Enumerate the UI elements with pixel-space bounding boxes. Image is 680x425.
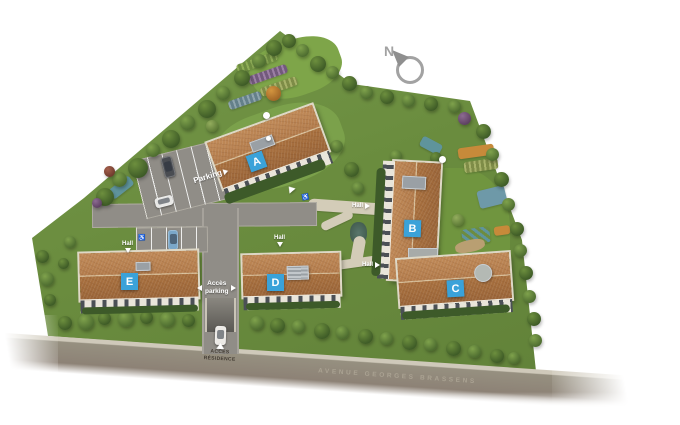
bush (92, 198, 102, 208)
tree (296, 44, 309, 57)
tree (292, 320, 305, 333)
tree (344, 162, 359, 177)
arrow-right-icon (231, 285, 236, 291)
building-c-badge[interactable]: C (447, 280, 465, 298)
tree (234, 70, 250, 86)
tree (402, 335, 417, 350)
car (168, 230, 178, 250)
disabled-parking-icon: ♿ (138, 235, 146, 241)
arrow-left-icon (197, 285, 202, 291)
tree (326, 66, 339, 79)
tree (266, 40, 282, 56)
tree (424, 338, 437, 351)
tree (523, 290, 536, 303)
tree (206, 120, 218, 132)
acces-parking-label: Accès parking (197, 280, 236, 296)
tree (330, 140, 343, 153)
tree (146, 143, 160, 157)
tree (250, 316, 264, 330)
hall-marker-building-b: Hall (352, 203, 370, 209)
tree (162, 130, 180, 148)
tree (527, 312, 541, 326)
rooftop-equipment (135, 262, 150, 271)
tree (282, 34, 296, 48)
tree (494, 172, 509, 187)
acces-parking-line1: Accès (207, 280, 226, 288)
street-name: AVENUE GEORGES BRASSENS (318, 367, 477, 385)
tree (476, 124, 491, 139)
rooftop-equipment (402, 176, 427, 190)
lamp-marker (439, 156, 446, 163)
parking-row: ♿ (136, 226, 208, 253)
tree (424, 97, 438, 111)
lamp-marker (266, 136, 271, 141)
tree (358, 329, 373, 344)
hall-marker-building-bc: Hall (362, 262, 380, 268)
hall-marker-building-d: Hall (274, 235, 285, 247)
disabled-parking-icon: ♿ (302, 194, 310, 201)
acces-parking-line2: parking (205, 288, 228, 296)
building-e-roof (79, 250, 198, 300)
tree (490, 349, 504, 363)
tree (40, 272, 54, 286)
tree (514, 244, 527, 257)
rooftop-equipment (287, 266, 309, 281)
car (154, 194, 174, 208)
building-e-badge[interactable]: E (121, 273, 138, 290)
tree (486, 148, 499, 161)
compass-icon: N (378, 36, 430, 92)
compass: N N (378, 36, 430, 92)
site-plan: AVENUE GEORGES BRASSENS ♿ ♿ ♿ (0, 0, 680, 425)
arrow-right-icon (365, 203, 370, 209)
tree (314, 323, 330, 339)
tree (58, 258, 69, 269)
tree (36, 250, 49, 263)
tree (452, 214, 464, 226)
tree (502, 198, 515, 211)
tree (58, 316, 72, 330)
tree (182, 314, 195, 327)
building-b-badge[interactable]: B (404, 220, 422, 238)
hall-label: Hall (122, 241, 133, 247)
tree (380, 90, 394, 104)
arrow-right-icon (375, 262, 380, 268)
tree (252, 54, 266, 68)
tree (160, 312, 175, 327)
bush (266, 86, 281, 101)
tree (360, 86, 373, 99)
tree (446, 341, 461, 356)
car (160, 155, 176, 178)
tree (216, 86, 230, 100)
tree (352, 182, 364, 194)
tree (78, 314, 94, 330)
arrow-down-icon (277, 242, 283, 247)
tree (510, 222, 524, 236)
tree (44, 294, 56, 306)
bush (104, 166, 115, 177)
tree (336, 326, 349, 339)
tree (402, 94, 415, 107)
hall-label: Hall (362, 262, 373, 268)
tree (519, 266, 533, 280)
acces-residence-label: ACCÈS RÉSIDENCE (204, 342, 237, 363)
tree (180, 115, 195, 130)
hall-label: Hall (352, 203, 363, 209)
tree (508, 352, 520, 364)
tree (342, 76, 357, 91)
tree (380, 332, 393, 345)
tree (270, 318, 285, 333)
bush (458, 112, 471, 125)
tree (198, 100, 216, 118)
acces-parking-text: Accès parking (205, 280, 228, 296)
tree (468, 345, 481, 358)
hall-marker-building-e: Hall (122, 241, 133, 253)
tree (128, 158, 148, 178)
compass-north-letter: N (384, 43, 394, 59)
building-d-badge[interactable]: D (267, 274, 284, 291)
hall-label: Hall (274, 235, 285, 241)
lamp-marker (263, 112, 270, 119)
tree (64, 236, 76, 248)
tree (529, 334, 542, 347)
tree (310, 56, 326, 72)
arrow-down-icon (125, 248, 131, 253)
arrow-up-icon (216, 343, 224, 349)
tree (448, 100, 461, 113)
